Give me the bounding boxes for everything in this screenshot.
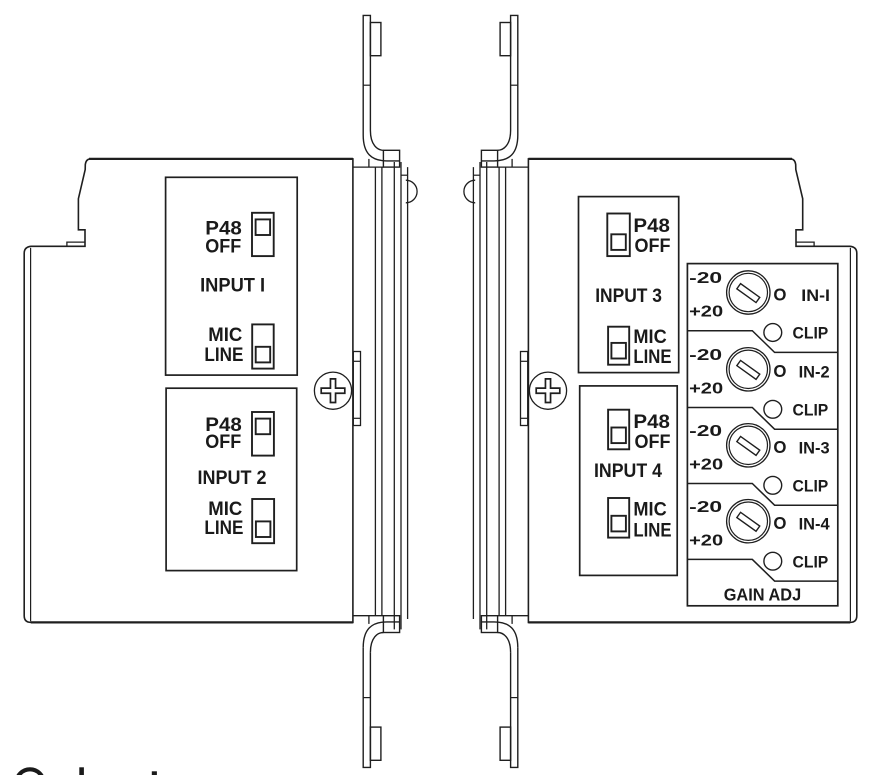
svg-text:LINE: LINE (204, 345, 243, 366)
svg-text:+20: +20 (689, 304, 723, 321)
svg-text:IN-4: IN-4 (799, 516, 831, 534)
svg-text:+20: +20 (689, 380, 723, 397)
svg-text:CLIP: CLIP (793, 401, 829, 419)
svg-text:P48: P48 (633, 216, 670, 237)
svg-text:-20: -20 (689, 499, 722, 516)
svg-text:INPUT 3: INPUT 3 (595, 286, 662, 307)
svg-text:O: O (773, 361, 786, 381)
svg-text:-20: -20 (689, 423, 722, 440)
svg-text:CLIP: CLIP (793, 553, 829, 571)
svg-text:-20: -20 (689, 270, 722, 287)
svg-text:INPUT 2: INPUT 2 (198, 468, 267, 489)
svg-text:INPUT I: INPUT I (200, 276, 265, 297)
svg-text:LINE: LINE (633, 347, 671, 368)
svg-text:O: O (773, 284, 786, 304)
svg-text:-20: -20 (689, 347, 722, 364)
svg-text:OFF: OFF (635, 432, 671, 453)
svg-text:MIC: MIC (633, 327, 667, 348)
svg-text:OFF: OFF (205, 432, 241, 453)
svg-text:MIC: MIC (208, 325, 242, 346)
svg-text:O: O (773, 437, 786, 457)
svg-text:IN-3: IN-3 (799, 440, 830, 458)
svg-text:P48: P48 (633, 412, 670, 433)
svg-text:MIC: MIC (633, 499, 667, 520)
svg-text:LINE: LINE (204, 518, 243, 539)
svg-text:+20: +20 (689, 532, 723, 549)
svg-text:+20: +20 (689, 456, 723, 473)
svg-text:INPUT 4: INPUT 4 (594, 461, 662, 482)
svg-text:O: O (773, 513, 786, 533)
svg-text:OFF: OFF (635, 236, 671, 257)
svg-text:LINE: LINE (633, 521, 671, 542)
svg-text:GAIN ADJ: GAIN ADJ (724, 585, 802, 605)
svg-text:CLIP: CLIP (793, 325, 829, 343)
svg-text:IN-2: IN-2 (799, 364, 830, 382)
svg-text:OFF: OFF (205, 237, 241, 258)
svg-text:IN-I: IN-I (801, 287, 830, 305)
svg-text:CLIP: CLIP (793, 477, 829, 495)
